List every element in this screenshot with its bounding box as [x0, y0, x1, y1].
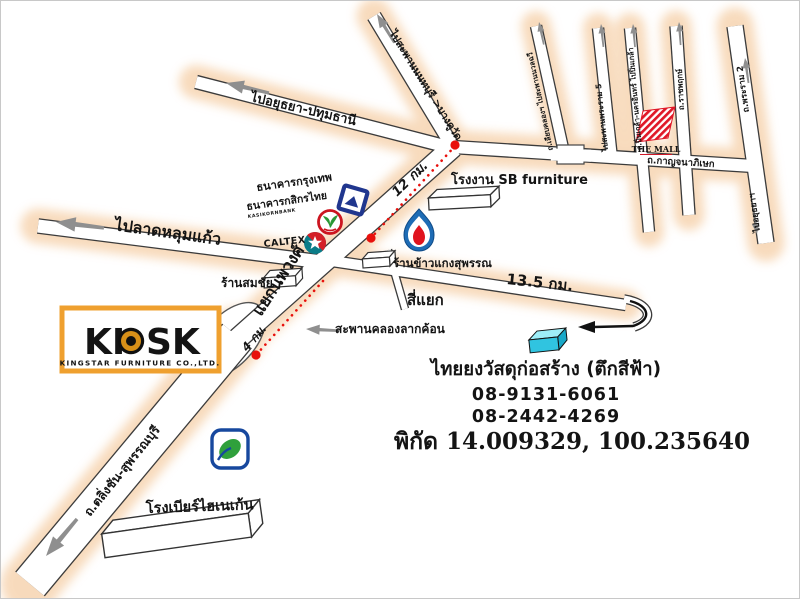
road-casings [30, 16, 766, 584]
label-rice-shop: ร้านข้าวแกงสุพรรณ [393, 256, 492, 271]
rice-shop-box [362, 251, 396, 268]
kiosk-company: KINGSTAR FURNITURE CO.,LTD. [60, 359, 221, 368]
kiosk-text-right: SK [146, 322, 201, 363]
label-si-yaek: สี่แยก [407, 289, 444, 309]
kasikorn-bank-icon [319, 211, 342, 234]
kiosk-o-icon [118, 328, 144, 354]
ptt-station-icon [404, 209, 434, 251]
bangkok-bank-icon [338, 185, 368, 215]
label-sb-factory: โรงงาน SB furniture [450, 171, 588, 188]
map-svg: THE MALL ธนาคารกรุงเทพ ธนาคารกสิกรไทย KA… [0, 0, 800, 599]
bangchak-station-icon [212, 430, 248, 468]
label-somchai-shop: ร้านสมชัย [221, 276, 273, 290]
sb-factory-box [428, 186, 500, 210]
destination-phone-2: 08-2442-4269 [472, 407, 620, 427]
kiosk-logo: KI SK KINGSTAR FURNITURE CO.,LTD. [60, 308, 221, 371]
caltex-icon [304, 232, 326, 254]
label-lak-khon-bridge: สะพานคลองลากค้อน [335, 322, 446, 336]
destination-blue-building [528, 328, 568, 353]
destination-phone-1: 08-9131-6061 [472, 385, 620, 405]
label-heineken: โรงเบียร์ไฮเนเก้น [145, 495, 254, 517]
map-canvas: THE MALL ธนาคารกรุงเทพ ธนาคารกสิกรไทย KA… [0, 0, 800, 599]
destination-name: ไทยยงวัสดุก่อสร้าง (ตึกสีฟ้า) [429, 357, 661, 381]
destination-coordinates: พิกัด 14.009329, 100.235640 [394, 428, 750, 455]
